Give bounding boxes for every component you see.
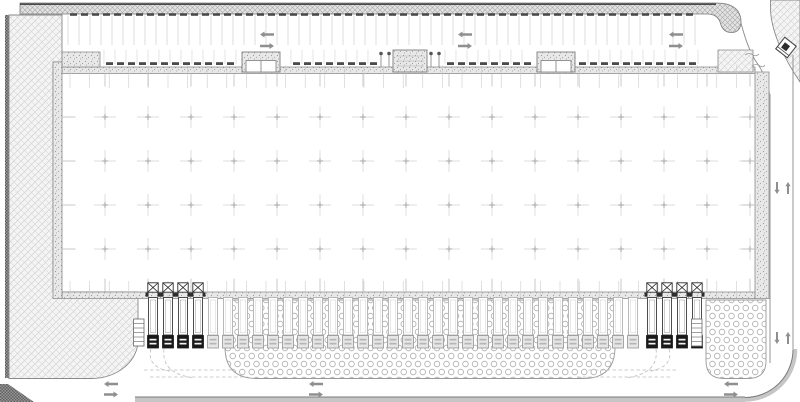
ghost-trailer-stall	[208, 298, 219, 349]
ghost-trailer-stall	[583, 298, 594, 349]
ghost-trailer-stall	[463, 298, 474, 349]
ghost-trailer-stall	[298, 298, 309, 349]
truck-at-dock	[148, 298, 159, 349]
truck-at-dock	[647, 298, 658, 349]
site-plan-canvas	[0, 0, 800, 402]
truck-trailer-stalls	[148, 298, 703, 349]
ghost-trailer-stall	[253, 298, 264, 349]
ghost-trailer-stall	[433, 298, 444, 349]
ghost-trailer-stall	[493, 298, 504, 349]
ghost-trailer-stall	[508, 298, 519, 349]
ghost-trailer-stall	[388, 298, 399, 349]
exterior-stairs-icon	[692, 319, 703, 346]
ghost-trailer-stall	[283, 298, 294, 349]
nw-corner-canopy	[62, 52, 100, 67]
entrance-center-canopy	[393, 50, 427, 72]
ghost-trailer-stall	[223, 298, 234, 349]
ghost-trailer-stall	[313, 298, 324, 349]
exterior-stairs-icon	[134, 319, 145, 346]
bollard-light-icon	[387, 52, 391, 56]
ghost-trailer-stall	[613, 298, 624, 349]
ghost-trailer-stall	[358, 298, 369, 349]
ghost-trailer-stall	[403, 298, 414, 349]
ghost-trailer-stall	[268, 298, 279, 349]
ghost-trailer-stall	[238, 298, 249, 349]
left-boundary-strip	[5, 15, 9, 378]
ghost-trailer-stall	[568, 298, 579, 349]
ghost-trailer-stall	[418, 298, 429, 349]
bollard-light-icon	[429, 52, 433, 56]
ghost-trailer-stall	[328, 298, 339, 349]
bottom-curb-band	[135, 398, 745, 402]
ghost-trailer-stall	[478, 298, 489, 349]
bollard-light-icon	[437, 52, 441, 56]
ghost-trailer-stall	[553, 298, 564, 349]
ghost-trailer-stall	[628, 298, 639, 349]
site-plan-page	[0, 0, 800, 402]
building-wall-left	[53, 62, 62, 299]
ghost-trailer-stall	[538, 298, 549, 349]
ghost-trailer-stall	[343, 298, 354, 349]
ghost-trailer-stall	[598, 298, 609, 349]
truck-at-dock	[662, 298, 673, 349]
truck-at-dock	[163, 298, 174, 349]
entrance-vestibule	[242, 52, 280, 72]
building-wall-right	[755, 72, 769, 299]
bollard-light-icon	[379, 52, 383, 56]
ghost-trailer-stall	[373, 298, 384, 349]
ghost-trailer-stall	[523, 298, 534, 349]
truck-at-dock	[193, 298, 204, 349]
entrance-vestibule	[537, 52, 575, 72]
truck-at-dock	[178, 298, 189, 349]
dock-apron-island	[706, 300, 766, 379]
ghost-trailer-stall	[448, 298, 459, 349]
truck-at-dock	[677, 298, 688, 349]
